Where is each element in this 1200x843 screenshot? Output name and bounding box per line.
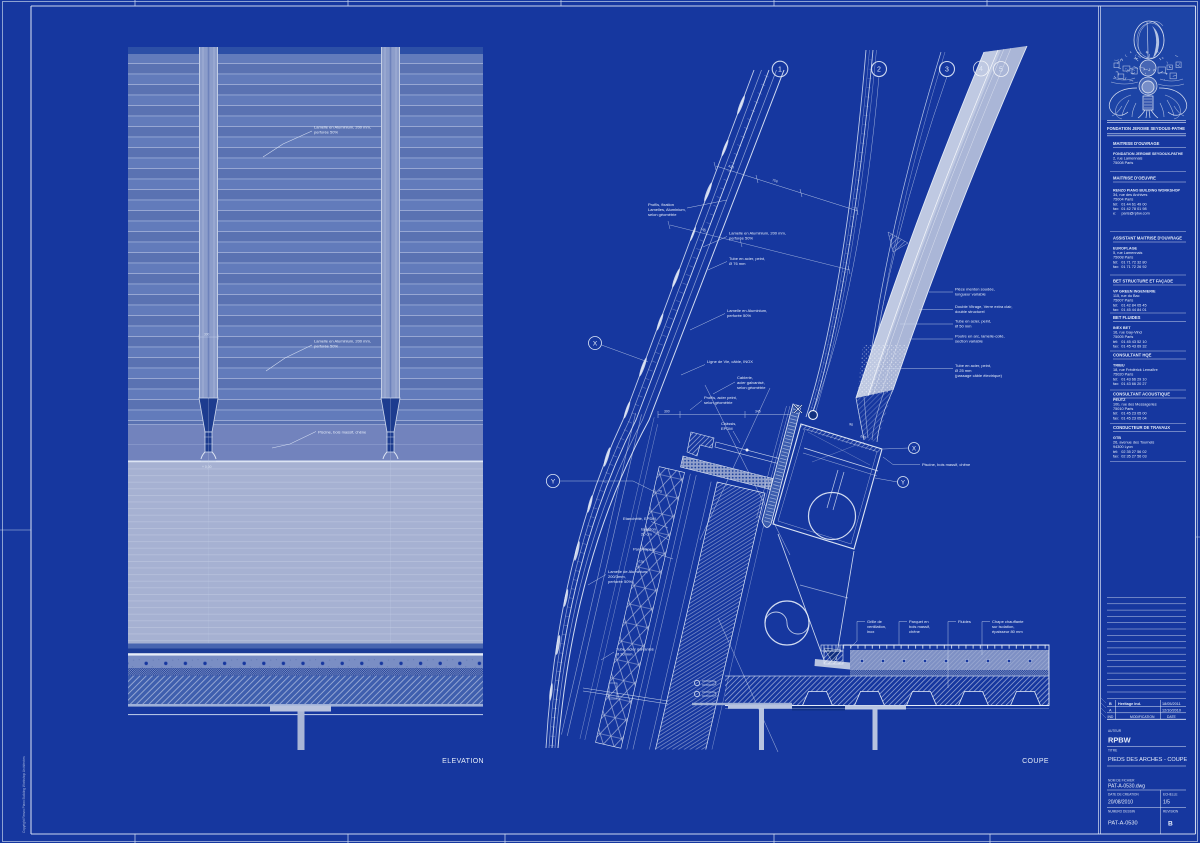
svg-text:ELEVATION: ELEVATION xyxy=(442,758,484,765)
svg-text:5: 5 xyxy=(999,67,1003,74)
svg-text:CONSULTANT HQE: CONSULTANT HQE xyxy=(1113,353,1152,358)
svg-text:MODIFICATION: MODIFICATION xyxy=(1130,715,1155,719)
svg-text:tél: 02 35 27 56 02: tél: 02 35 27 56 02 xyxy=(1113,450,1147,454)
svg-text:5, rue Lamennais: 5, rue Lamennais xyxy=(1113,251,1142,255)
svg-text:1: 1 xyxy=(778,67,782,74)
svg-text:INEX BET: INEX BET xyxy=(1113,326,1131,330)
svg-text:NUMERO DESSIN: NUMERO DESSIN xyxy=(1108,810,1136,814)
svg-text:Fluides: Fluides xyxy=(958,619,971,624)
svg-text:Heritage Ind.: Heritage Ind. xyxy=(1118,702,1141,706)
svg-text:inox: inox xyxy=(867,629,874,634)
svg-text:PIEDS DES ARCHES - COUPE: PIEDS DES ARCHES - COUPE xyxy=(1108,757,1188,763)
svg-text:12/10/2010: 12/10/2010 xyxy=(1162,709,1181,713)
svg-text:GTB: GTB xyxy=(1113,436,1121,440)
svg-text:tél: 01 71 72 32 80: tél: 01 71 72 32 80 xyxy=(1113,260,1147,264)
svg-text:RENZO PIANO BUILDING WORKSHOP: RENZO PIANO BUILDING WORKSHOP xyxy=(1113,189,1180,193)
svg-text:2, rue Lamennais: 2, rue Lamennais xyxy=(1113,157,1142,161)
svg-text:75004 Paris: 75004 Paris xyxy=(1113,198,1133,202)
svg-text:Ligne de Vie, câble, INOX: Ligne de Vie, câble, INOX xyxy=(707,359,753,364)
svg-text:fax: 01 45 44 84 01: fax: 01 45 44 84 01 xyxy=(1113,308,1147,312)
svg-text:X: X xyxy=(593,341,598,348)
svg-text:RPBW: RPBW xyxy=(1108,736,1131,745)
svg-text:ECHELLE: ECHELLE xyxy=(1163,793,1178,797)
svg-text:fax: 01 43 66 20 27: fax: 01 43 66 20 27 xyxy=(1113,382,1147,386)
svg-text:perforée 50%: perforée 50% xyxy=(727,313,751,318)
svg-text:tél: 01 45 23 05 00: tél: 01 45 23 05 00 xyxy=(1113,412,1147,416)
svg-text:FONDATION JEROME SEYDOUX-PATHE: FONDATION JEROME SEYDOUX-PATHE xyxy=(1113,152,1183,156)
svg-text:Pare-Vapeur: Pare-Vapeur xyxy=(633,547,656,552)
svg-text:section variable: section variable xyxy=(955,339,984,344)
svg-text:tél: 01 42 84 05 45: tél: 01 42 84 05 45 xyxy=(1113,303,1147,307)
svg-text:fax: 01 71 72 26 92: fax: 01 71 72 26 92 xyxy=(1113,265,1147,269)
svg-text:18/05/2011: 18/05/2011 xyxy=(1162,702,1181,706)
svg-text:tél: 01 45 43 52 10: tél: 01 45 43 52 10 xyxy=(1113,340,1147,344)
svg-text:Y: Y xyxy=(901,481,905,487)
svg-text:REVISION: REVISION xyxy=(1163,810,1179,814)
svg-text:CONDUCTEUR DE TRAVAUX: CONDUCTEUR DE TRAVAUX xyxy=(1113,425,1170,430)
svg-text:2: 2 xyxy=(877,67,881,74)
svg-text:épaisseur 80 mm: épaisseur 80 mm xyxy=(992,629,1023,634)
svg-text:perforée 50%: perforée 50% xyxy=(314,344,338,349)
svg-text:chêne: chêne xyxy=(909,629,921,634)
svg-text:Ø 50 mm: Ø 50 mm xyxy=(955,324,972,329)
svg-text:IND: IND xyxy=(1108,715,1114,719)
svg-text:75020 Paris: 75020 Paris xyxy=(1113,373,1133,377)
svg-text:75010 Paris: 75010 Paris xyxy=(1113,407,1133,411)
svg-text:TRIBU: TRIBU xyxy=(1113,364,1125,368)
svg-text:TITRE: TITRE xyxy=(1108,749,1117,753)
svg-text:COUPE: COUPE xyxy=(1022,758,1049,765)
svg-text:BET STRUCTURE ET FAÇADE: BET STRUCTURE ET FAÇADE xyxy=(1113,279,1173,284)
svg-text:fax: 02 35 27 56 03: fax: 02 35 27 56 03 xyxy=(1113,454,1147,458)
svg-text:MAITRISE D'OEUVRE: MAITRISE D'OEUVRE xyxy=(1113,176,1156,181)
svg-text:Piscine, bois massif, chêne: Piscine, bois massif, chêne xyxy=(318,430,367,435)
svg-text:e: paris@rpbw.com: e: paris@rpbw.com xyxy=(1113,212,1150,216)
svg-text:selon géométrie: selon géométrie xyxy=(737,385,766,390)
svg-text:fax: 01 45 23 05 04: fax: 01 45 23 05 04 xyxy=(1113,416,1147,420)
svg-text:perforée 50%: perforée 50% xyxy=(608,579,632,584)
svg-text:DATE DE CREATION: DATE DE CREATION xyxy=(1108,793,1139,797)
svg-text:fax: 01 45 43 69 32: fax: 01 45 43 69 32 xyxy=(1113,344,1147,348)
svg-text:75008 Paris: 75008 Paris xyxy=(1113,161,1133,165)
svg-text:16, rue Gay-Vinci: 16, rue Gay-Vinci xyxy=(1113,331,1142,335)
svg-text:tél: 01 43 66 29 10: tél: 01 43 66 29 10 xyxy=(1113,377,1147,381)
svg-text:NOM DE FICHIER: NOM DE FICHIER xyxy=(1108,779,1135,783)
svg-text:20 cm: 20 cm xyxy=(641,532,653,537)
svg-text:BET FLUIDES: BET FLUIDES xyxy=(1113,315,1141,320)
svg-text:Ø 30 mm: Ø 30 mm xyxy=(616,652,633,657)
svg-text:AUTEUR: AUTEUR xyxy=(1108,729,1122,733)
svg-text:PAT-A-0530.dwg: PAT-A-0530.dwg xyxy=(1108,784,1145,790)
svg-text:tél: 01 44 61 49 00: tél: 01 44 61 49 00 xyxy=(1113,202,1147,206)
svg-text:fax: 01 42 78 01 98: fax: 01 42 78 01 98 xyxy=(1113,207,1147,211)
svg-text:perforée 50%: perforée 50% xyxy=(314,130,338,135)
svg-text:Ø 76 mm: Ø 76 mm xyxy=(729,261,746,266)
svg-text:(passage câble électrique): (passage câble électrique) xyxy=(955,373,1003,378)
svg-text:EPDM: EPDM xyxy=(721,426,733,431)
svg-text:PEUTZ: PEUTZ xyxy=(1113,398,1126,402)
svg-text:+ 0,00: + 0,00 xyxy=(202,465,212,469)
svg-text:34, rue des Archives: 34, rue des Archives xyxy=(1113,193,1148,197)
svg-text:18, rue Frédérick Lemaître: 18, rue Frédérick Lemaître xyxy=(1113,368,1158,372)
svg-text:20/08/2010: 20/08/2010 xyxy=(1108,800,1133,806)
svg-text:Piscine, bois massif, chêne: Piscine, bois massif, chêne xyxy=(922,462,971,467)
svg-text:26, avenue des Tournels: 26, avenue des Tournels xyxy=(1113,441,1154,445)
svg-text:10b, rue des Messageries: 10b, rue des Messageries xyxy=(1113,403,1157,407)
svg-text:perforée 50%: perforée 50% xyxy=(729,236,753,241)
svg-text:EUROPLAGE: EUROPLAGE xyxy=(1113,247,1138,251)
svg-text:longueur variable: longueur variable xyxy=(955,292,986,297)
svg-text:selon géométrie: selon géométrie xyxy=(704,400,733,405)
svg-text:FONDATION JEROME SEYDOUX-PATHE: FONDATION JEROME SEYDOUX-PATHE xyxy=(1107,126,1185,131)
svg-text:CONSULTANT ACOUSTIQUE: CONSULTANT ACOUSTIQUE xyxy=(1113,392,1170,397)
svg-text:B: B xyxy=(1168,821,1173,828)
svg-text:4: 4 xyxy=(979,66,983,73)
svg-text:75005 Paris: 75005 Paris xyxy=(1113,335,1133,339)
svg-text:Etanchéité, EPDM: Etanchéité, EPDM xyxy=(623,516,656,521)
svg-text:300: 300 xyxy=(664,410,670,414)
svg-text:75008 Paris: 75008 Paris xyxy=(1113,256,1133,260)
svg-text:VP GREEN INGENIERIE: VP GREEN INGENIERIE xyxy=(1113,290,1156,294)
svg-text:B: B xyxy=(1109,702,1112,706)
svg-text:PAT-A-0530: PAT-A-0530 xyxy=(1108,821,1138,827)
svg-text:94300 Lyon: 94300 Lyon xyxy=(1113,445,1133,449)
svg-text:selon géométrie: selon géométrie xyxy=(648,212,677,217)
svg-text:Y: Y xyxy=(551,479,556,486)
svg-text:DATE: DATE xyxy=(1167,715,1177,719)
svg-text:MAITRISE D'OUVRAGE: MAITRISE D'OUVRAGE xyxy=(1113,141,1160,146)
svg-text:double structurel: double structurel xyxy=(955,309,985,314)
svg-text:115, rue du Bac: 115, rue du Bac xyxy=(1113,294,1140,298)
svg-text:3: 3 xyxy=(945,67,949,74)
svg-text:1/5: 1/5 xyxy=(1163,800,1170,806)
svg-text:ASSISTANT MAITRISE D'OUVRAGE: ASSISTANT MAITRISE D'OUVRAGE xyxy=(1113,236,1182,241)
svg-text:X: X xyxy=(912,447,916,453)
svg-text:300: 300 xyxy=(204,333,210,337)
svg-text:Copyright Renzo Piano Building: Copyright Renzo Piano Building Workshop … xyxy=(22,756,26,833)
svg-text:75007 Paris: 75007 Paris xyxy=(1113,299,1133,303)
